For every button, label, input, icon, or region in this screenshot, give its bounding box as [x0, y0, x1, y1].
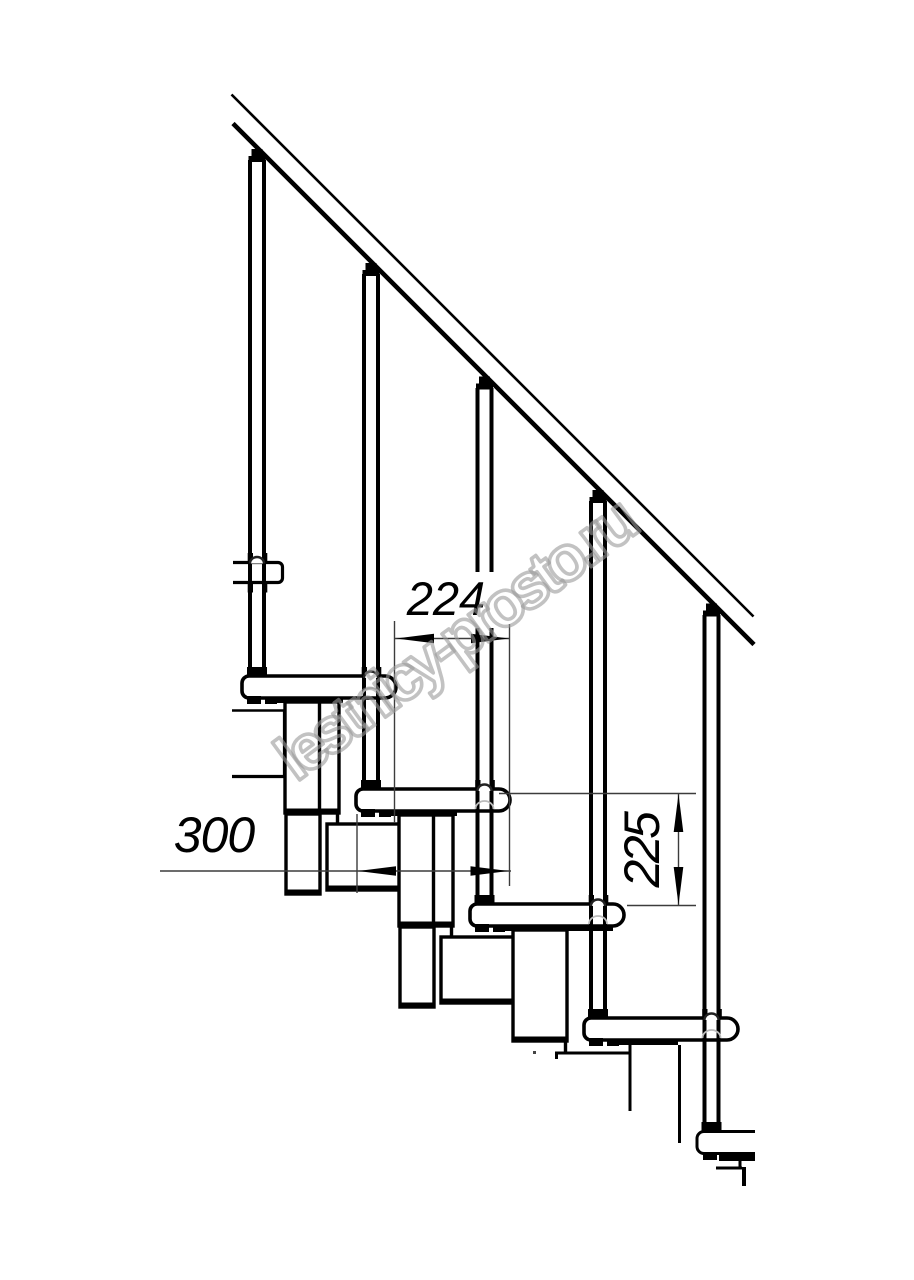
svg-text:300: 300 [174, 807, 256, 863]
svg-text:225: 225 [614, 811, 670, 889]
